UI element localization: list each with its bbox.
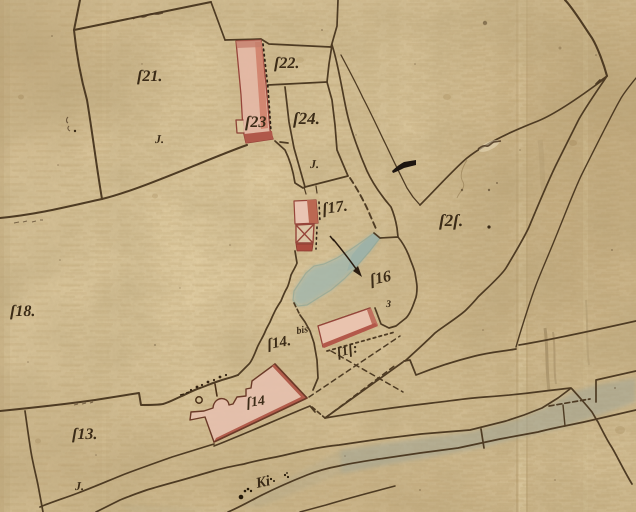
- svg-text:J.: J.: [309, 157, 319, 171]
- svg-text:ſ13.: ſ13.: [72, 426, 97, 443]
- svg-text:ſ14: ſ14: [245, 394, 266, 411]
- svg-text:ſ23: ſ23: [245, 114, 266, 131]
- svg-text:ſ24.: ſ24.: [293, 109, 320, 128]
- svg-text:bis: bis: [296, 324, 310, 337]
- svg-text:ſ2ſ.: ſ2ſ.: [439, 211, 463, 230]
- svg-text:ſ22.: ſ22.: [274, 55, 299, 72]
- svg-text:J.: J.: [154, 132, 164, 146]
- svg-text:ſ17.: ſ17.: [321, 198, 348, 218]
- svg-text:ſ21.: ſ21.: [137, 68, 162, 85]
- svg-text:3: 3: [385, 299, 391, 310]
- svg-text:ſ18.: ſ18.: [10, 303, 35, 320]
- svg-text:J.: J.: [74, 479, 84, 493]
